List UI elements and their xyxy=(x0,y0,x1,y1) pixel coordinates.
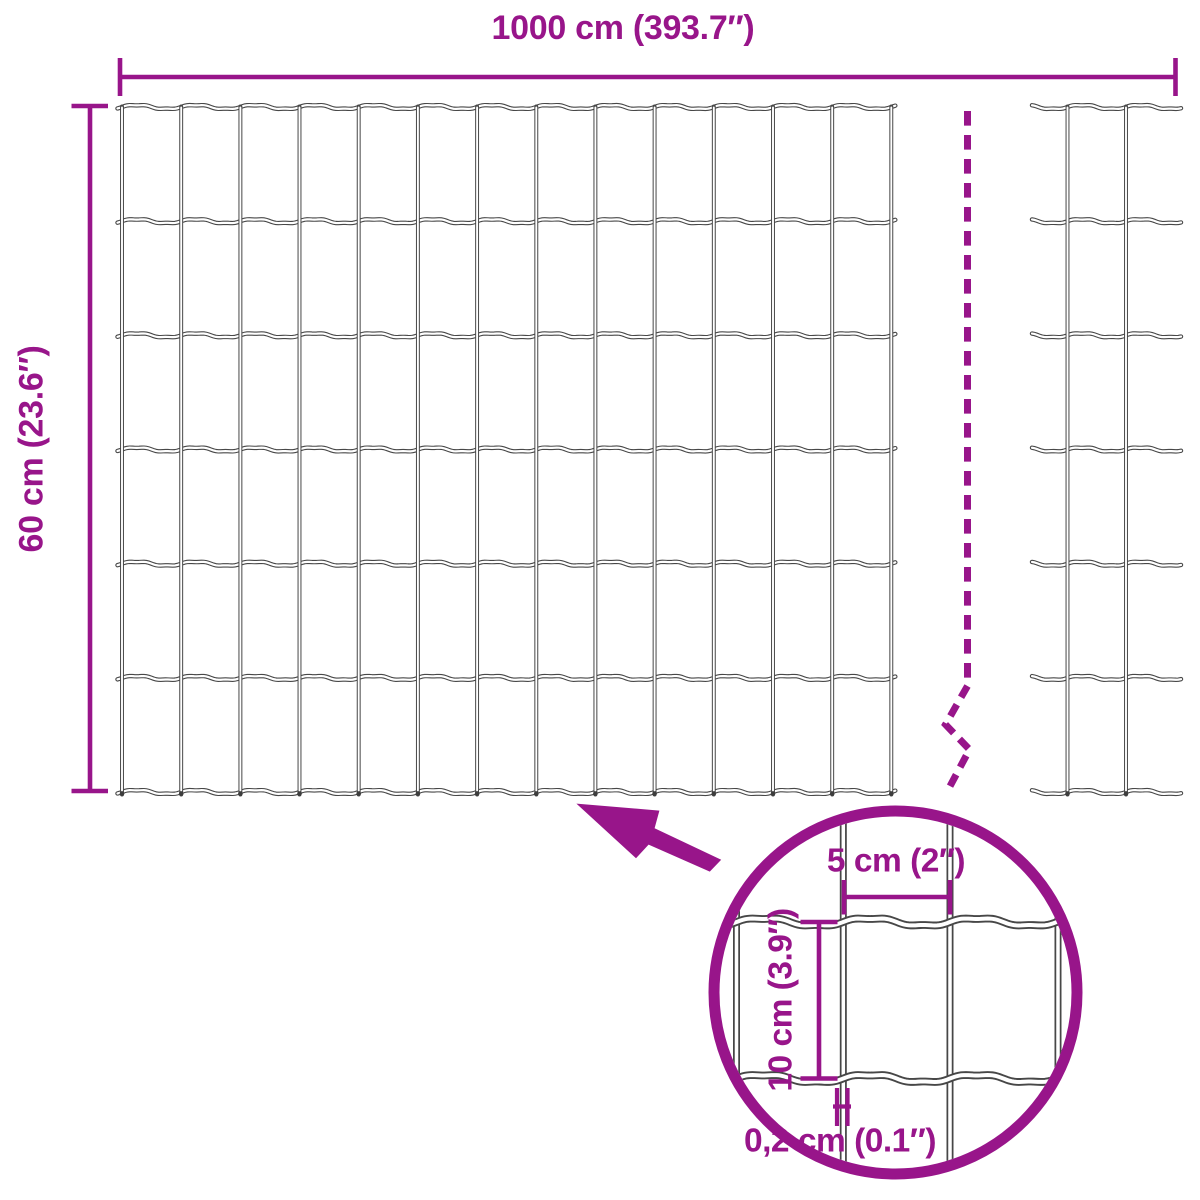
svg-text:5 cm (2″): 5 cm (2″) xyxy=(827,843,965,880)
svg-text:0,2 cm (0.1″): 0,2 cm (0.1″) xyxy=(744,1123,936,1160)
svg-text:10 cm (3.9″): 10 cm (3.9″) xyxy=(763,908,800,1091)
svg-text:1000 cm (393.7″): 1000 cm (393.7″) xyxy=(492,9,755,47)
svg-text:60 cm (23.6″): 60 cm (23.6″) xyxy=(13,345,51,552)
